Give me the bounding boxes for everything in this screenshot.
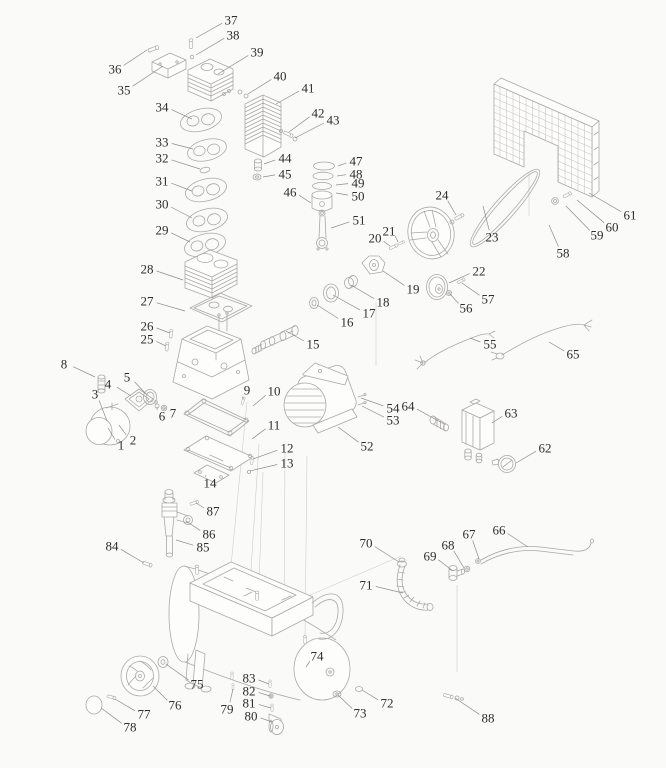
- part-label-83: 83: [243, 671, 256, 686]
- wheel-assembly: [86, 656, 168, 714]
- part-label-37: 37: [225, 13, 239, 28]
- leader-line-45: [263, 175, 275, 177]
- leader-line-16: [317, 305, 338, 319]
- cylinder-head: [188, 59, 233, 101]
- part-label-25: 25: [141, 332, 154, 347]
- belt-guard: [494, 78, 599, 204]
- part-label-44: 44: [279, 151, 293, 166]
- part-label-76: 76: [169, 698, 183, 713]
- part-label-56: 56: [460, 301, 474, 316]
- part-label-9: 9: [244, 383, 251, 398]
- part-label-21: 21: [383, 224, 396, 239]
- part-label-6: 6: [159, 409, 166, 424]
- leader-line-48: [337, 175, 346, 176]
- leader-line-71: [376, 587, 403, 594]
- part-label-85: 85: [197, 540, 210, 555]
- diagram-canvas: 1234567891011121314151617181920212223242…: [0, 0, 666, 768]
- part-label-67: 67: [463, 527, 477, 542]
- leader-line-12: [253, 450, 278, 459]
- leader-line-79: [230, 689, 233, 702]
- leader-line-33: [172, 144, 193, 150]
- part-label-66: 66: [493, 523, 507, 538]
- part-label-27: 27: [141, 294, 155, 309]
- flywheel-and-belt: [403, 163, 547, 300]
- leader-line-34: [171, 110, 192, 119]
- leader-line-47: [338, 163, 346, 166]
- part-label-8: 8: [61, 357, 68, 372]
- part-label-17: 17: [363, 306, 377, 321]
- leader-line-44: [264, 160, 275, 164]
- leader-line-19: [383, 271, 404, 285]
- part-label-68: 68: [442, 538, 455, 553]
- part-label-36: 36: [109, 62, 123, 77]
- part-label-45: 45: [279, 167, 292, 182]
- part-label-2: 2: [130, 433, 137, 448]
- leader-line-50: [336, 193, 348, 195]
- leader-line-82: [259, 693, 270, 696]
- leader-line-85: [176, 540, 193, 545]
- check-valve-assembly: [162, 490, 199, 558]
- part-label-10: 10: [268, 384, 281, 399]
- part-label-51: 51: [353, 213, 366, 228]
- power-cables: [415, 320, 592, 369]
- leader-line-70: [375, 547, 399, 563]
- leader-line-73: [338, 695, 352, 709]
- leader-line-58: [549, 225, 559, 247]
- leader-line-49: [336, 184, 348, 185]
- leader-line-42: [289, 117, 310, 132]
- part-label-73: 73: [354, 706, 367, 721]
- leader-line-23: [483, 206, 489, 230]
- leader-line-26: [157, 328, 170, 333]
- part-label-4: 4: [105, 377, 112, 392]
- part-label-22: 22: [473, 264, 486, 279]
- part-label-39: 39: [251, 45, 264, 60]
- part-label-35: 35: [118, 83, 131, 98]
- leader-line-15: [286, 331, 304, 341]
- leader-line-88: [455, 698, 479, 714]
- part-label-52: 52: [361, 439, 374, 454]
- part-label-86: 86: [203, 527, 217, 542]
- part-label-7: 7: [170, 406, 177, 421]
- part-label-33: 33: [156, 135, 169, 150]
- part-label-29: 29: [156, 223, 169, 238]
- leader-line-38: [196, 38, 224, 55]
- leader-line-76: [153, 686, 167, 700]
- leader-line-13: [250, 465, 277, 472]
- part-label-18: 18: [377, 295, 390, 310]
- part-label-87: 87: [207, 504, 221, 519]
- part-label-42: 42: [312, 106, 325, 121]
- part-label-65: 65: [567, 347, 580, 362]
- part-label-50: 50: [352, 189, 365, 204]
- part-label-23: 23: [486, 230, 499, 245]
- air-filter-assembly: [86, 375, 167, 445]
- leader-line-17: [333, 295, 360, 310]
- motor: [284, 363, 366, 433]
- leader-line-32: [172, 160, 200, 169]
- part-label-1: 1: [118, 438, 125, 453]
- leader-line-53: [362, 406, 384, 417]
- part-label-14: 14: [204, 476, 218, 491]
- part-label-31: 31: [156, 174, 169, 189]
- leader-line-28: [157, 271, 183, 280]
- leader-line-43: [295, 123, 324, 138]
- part-label-34: 34: [156, 100, 170, 115]
- part-label-78: 78: [124, 720, 137, 735]
- leader-line-10: [253, 395, 266, 406]
- part-label-58: 58: [557, 246, 570, 261]
- leader-line-27: [157, 303, 185, 311]
- leader-line-55: [470, 338, 480, 342]
- part-label-77: 77: [138, 707, 152, 722]
- part-label-20: 20: [369, 231, 382, 246]
- leader-line-11: [252, 429, 266, 439]
- leader-line-60: [577, 200, 604, 223]
- leader-line-24: [448, 201, 456, 215]
- exploded-parts-diagram-page: 1234567891011121314151617181920212223242…: [0, 0, 666, 768]
- leader-line-52: [338, 427, 359, 442]
- part-label-32: 32: [156, 151, 169, 166]
- part-label-41: 41: [302, 81, 315, 96]
- part-label-88: 88: [482, 711, 495, 726]
- leader-line-77: [115, 699, 135, 711]
- part-label-24: 24: [436, 188, 450, 203]
- valve-plate-stack: [178, 104, 230, 261]
- part-label-69: 69: [424, 549, 437, 564]
- part-label-64: 64: [402, 399, 416, 414]
- part-label-30: 30: [156, 197, 169, 212]
- leader-line-67: [473, 541, 479, 560]
- leader-line-66: [508, 534, 528, 548]
- leader-line-30: [171, 207, 192, 218]
- part-label-16: 16: [341, 315, 355, 330]
- part-label-63: 63: [505, 406, 518, 421]
- leader-line-20: [384, 241, 390, 246]
- part-label-54: 54: [387, 401, 401, 416]
- leader-line-87: [196, 503, 204, 508]
- leader-line-83: [259, 680, 269, 684]
- leader-line-61: [589, 193, 621, 212]
- part-label-61: 61: [624, 208, 637, 223]
- leader-line-46: [299, 195, 311, 203]
- leader-line-18: [351, 285, 374, 299]
- part-label-26: 26: [141, 319, 155, 334]
- part-label-5: 5: [124, 370, 131, 385]
- leader-line-62: [516, 451, 536, 463]
- crankcase: [165, 312, 249, 399]
- leader-line-75: [166, 664, 189, 680]
- part-label-62: 62: [539, 441, 552, 456]
- leader-line-56: [450, 294, 459, 303]
- caster-assembly: [231, 672, 284, 735]
- part-label-43: 43: [327, 113, 340, 128]
- part-label-82: 82: [243, 684, 256, 699]
- part-label-28: 28: [141, 262, 154, 277]
- part-label-38: 38: [227, 28, 240, 43]
- pressure-switch: [462, 399, 494, 463]
- leader-line-25: [156, 341, 166, 346]
- part-label-72: 72: [381, 696, 394, 711]
- leader-line-72: [362, 690, 378, 700]
- part-label-13: 13: [281, 456, 294, 471]
- part-label-60: 60: [606, 220, 619, 235]
- leader-line-57: [462, 283, 480, 295]
- leader-line-8: [73, 367, 95, 377]
- leader-line-35: [133, 66, 164, 86]
- part-label-79: 79: [221, 702, 234, 717]
- leader-line-40: [248, 79, 271, 94]
- nipple-fitting: [430, 416, 449, 431]
- piston-assembly: [312, 162, 335, 250]
- leader-line-51: [331, 222, 349, 228]
- part-label-70: 70: [360, 536, 373, 551]
- part-label-75: 75: [191, 677, 204, 692]
- leader-line-78: [101, 708, 122, 723]
- leader-line-65: [549, 342, 564, 351]
- part-label-84: 84: [106, 539, 120, 554]
- leader-line-21: [395, 236, 398, 242]
- part-label-12: 12: [281, 441, 294, 456]
- base-plates: [184, 397, 254, 483]
- part-label-71: 71: [360, 578, 373, 593]
- part-label-74: 74: [311, 649, 325, 664]
- part-label-19: 19: [407, 282, 420, 297]
- part-label-57: 57: [482, 292, 496, 307]
- part-label-55: 55: [484, 337, 497, 352]
- leader-line-41: [276, 91, 299, 104]
- part-label-46: 46: [284, 185, 298, 200]
- leader-line-59: [566, 206, 590, 230]
- part-label-80: 80: [245, 709, 258, 724]
- leader-line-84: [121, 549, 144, 563]
- part-label-15: 15: [307, 337, 320, 352]
- leader-line-37: [196, 23, 222, 38]
- part-label-3: 3: [92, 387, 99, 402]
- leader-line-86: [186, 521, 200, 531]
- leader-line-7: [165, 408, 166, 409]
- part-label-11: 11: [268, 418, 281, 433]
- leader-line-4: [117, 387, 131, 396]
- head-cover-assembly: [148, 39, 194, 78]
- leader-line-36: [124, 50, 147, 65]
- pressure-gauge: [492, 456, 516, 473]
- leader-line-81: [259, 705, 271, 708]
- part-label-59: 59: [591, 228, 604, 243]
- leader-line-29: [171, 233, 190, 242]
- cylinder-block: [185, 250, 252, 322]
- part-label-40: 40: [274, 69, 287, 84]
- bolt-84: [142, 561, 152, 568]
